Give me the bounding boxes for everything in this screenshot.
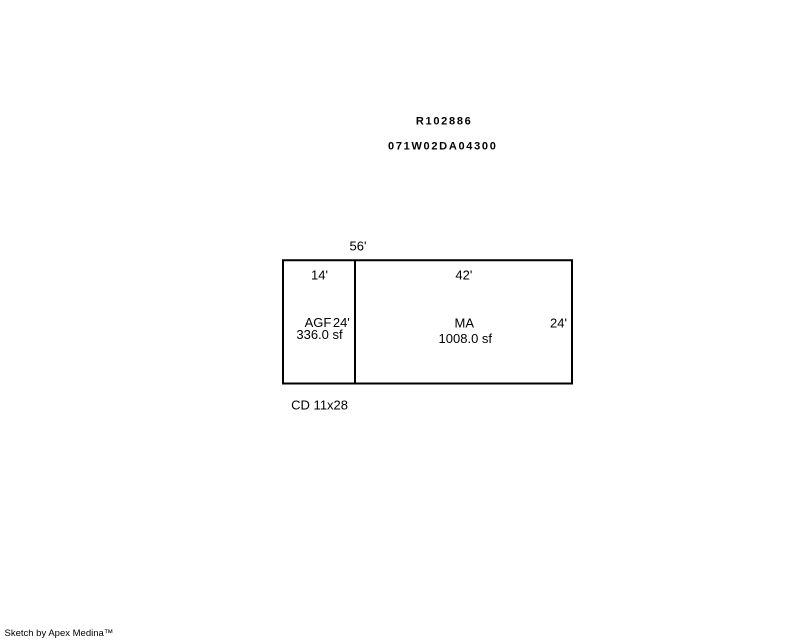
svg-text:42': 42' bbox=[455, 268, 472, 283]
svg-text:14': 14' bbox=[311, 268, 328, 283]
svg-text:Sketch by Apex Medina™: Sketch by Apex Medina™ bbox=[5, 628, 114, 639]
svg-text:CD 11x28: CD 11x28 bbox=[291, 398, 348, 413]
svg-text:24': 24' bbox=[550, 315, 567, 330]
svg-text:336.0 sf: 336.0 sf bbox=[296, 327, 343, 342]
svg-text:1008.0 sf: 1008.0 sf bbox=[439, 331, 493, 346]
svg-text:MA: MA bbox=[455, 316, 475, 331]
svg-text:56': 56' bbox=[350, 239, 367, 254]
svg-text:R102886: R102886 bbox=[416, 116, 473, 128]
svg-text:071W02DA04300: 071W02DA04300 bbox=[388, 141, 498, 153]
